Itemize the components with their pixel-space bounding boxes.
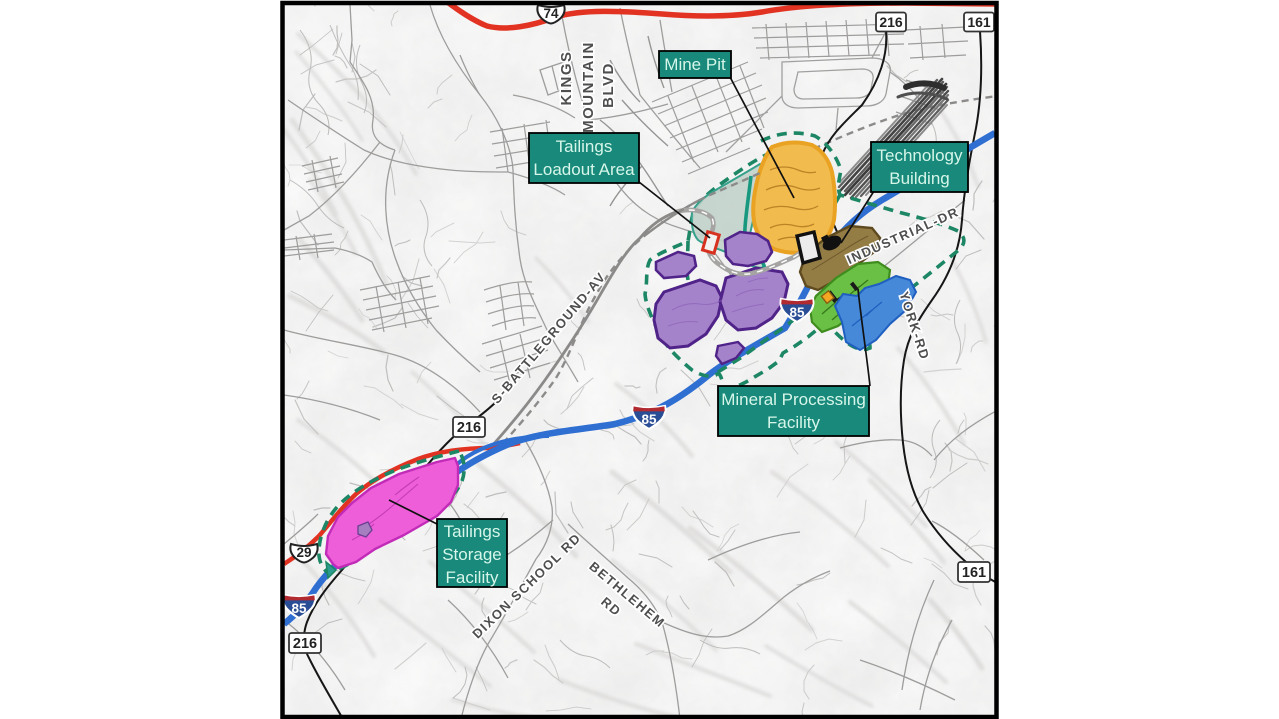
svg-text:Mine Pit: Mine Pit xyxy=(664,55,726,74)
svg-text:Technology: Technology xyxy=(876,146,963,165)
svg-text:Mineral Processing: Mineral Processing xyxy=(721,390,866,409)
svg-text:29: 29 xyxy=(296,545,311,560)
svg-text:216: 216 xyxy=(879,14,903,30)
svg-text:Facility: Facility xyxy=(767,413,820,432)
svg-text:216: 216 xyxy=(457,420,481,436)
svg-text:Tailings: Tailings xyxy=(444,522,501,541)
svg-text:Loadout Area: Loadout Area xyxy=(533,160,635,179)
svg-text:BLVD: BLVD xyxy=(600,62,617,108)
svg-text:MOUNTAIN: MOUNTAIN xyxy=(580,41,597,133)
svg-text:KINGS: KINGS xyxy=(558,50,575,105)
svg-text:74: 74 xyxy=(543,6,559,21)
svg-text:Tailings: Tailings xyxy=(556,137,613,156)
svg-text:85: 85 xyxy=(641,412,657,427)
svg-text:161: 161 xyxy=(962,565,986,581)
svg-text:Facility: Facility xyxy=(446,568,499,587)
svg-text:85: 85 xyxy=(789,305,805,320)
svg-text:Storage: Storage xyxy=(442,545,502,564)
svg-text:85: 85 xyxy=(291,601,307,616)
svg-text:216: 216 xyxy=(293,636,317,652)
svg-text:161: 161 xyxy=(967,14,991,30)
svg-text:Building: Building xyxy=(889,169,950,188)
